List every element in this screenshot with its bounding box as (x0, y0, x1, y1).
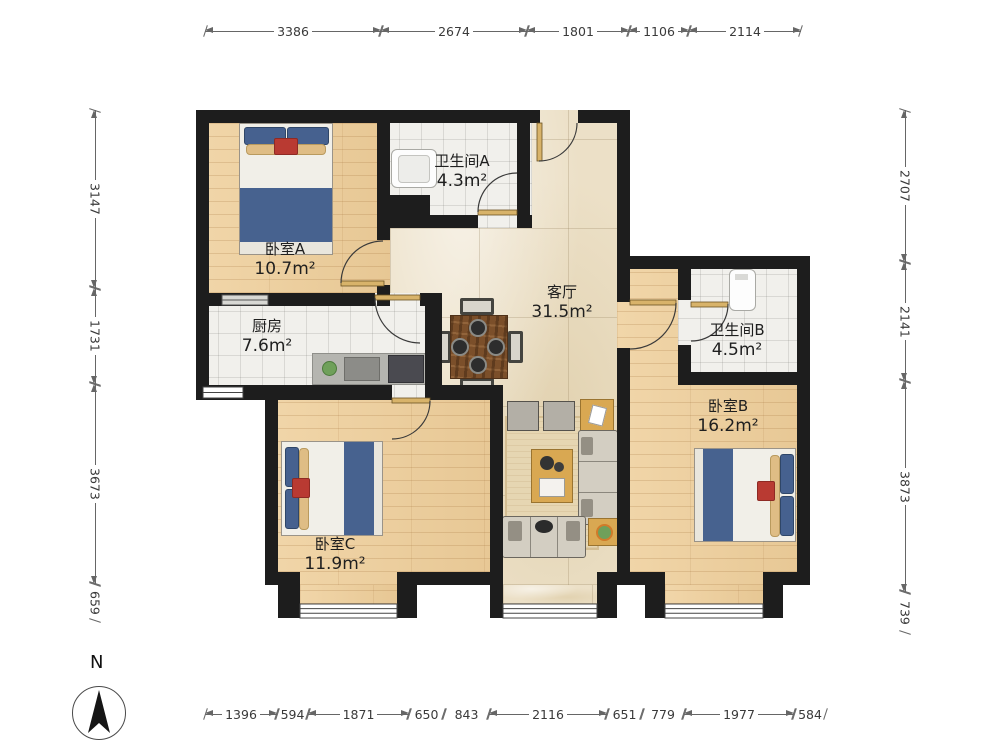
dimension-line (205, 31, 274, 32)
dimension-segment-top: 3386 (205, 23, 381, 39)
dimension-label: 659 (88, 588, 103, 618)
dimension-line (527, 31, 559, 32)
dimension-line (95, 384, 96, 465)
room-area: 10.7m² (254, 259, 315, 280)
room-area: 11.9m² (304, 554, 365, 575)
dimension-label: 2114 (726, 24, 764, 39)
dimension-label: 2141 (898, 303, 913, 341)
door-panel-bedroom-c (392, 398, 430, 403)
dimension-line (758, 714, 794, 715)
room-area: 4.3m² (434, 171, 489, 192)
door-arc-bedroom-c (392, 401, 430, 439)
dimension-segment-bottom: 843 (444, 706, 489, 722)
dimension-segment-bottom: 779 (642, 706, 684, 722)
door-panel-bedroom-b (630, 300, 676, 305)
dimension-label: 2116 (529, 707, 567, 722)
dimension-line (95, 503, 96, 584)
window-bay-bedroom-c (300, 604, 397, 618)
room-name: 卧室B (697, 397, 758, 416)
dimension-segment-bottom: 650 (409, 706, 444, 722)
dimension-segment-right: 2707 (897, 110, 913, 262)
room-label-living-room: 客厅 31.5m² (531, 283, 592, 323)
dimension-label: 1396 (222, 707, 260, 722)
window-bay-living (503, 604, 597, 618)
door-panel-bathroom-a (478, 210, 517, 215)
room-name: 客厅 (531, 283, 592, 302)
door-arc-entry (539, 123, 577, 161)
dimension-line (689, 31, 726, 32)
room-label-bedroom-b: 卧室B 16.2m² (697, 397, 758, 437)
room-label-kitchen: 厨房 7.6m² (242, 317, 292, 357)
dimension-segment-bottom: 651 (607, 706, 642, 722)
room-area: 4.5m² (709, 340, 764, 361)
dimension-label: 1977 (720, 707, 758, 722)
room-label-bedroom-c: 卧室C 11.9m² (304, 535, 365, 575)
window-internal-bedroom-a (222, 295, 268, 305)
dimension-segment-left: 659 (87, 584, 103, 621)
dimension-segment-bottom: 1977 (684, 706, 794, 722)
dimension-segment-top: 1801 (527, 23, 629, 39)
dimension-label: 3147 (88, 180, 103, 218)
door-arc-kitchen (375, 298, 420, 343)
door-panel-kitchen (375, 295, 420, 300)
room-name: 卧室C (304, 535, 365, 554)
room-name: 卫生间A (434, 152, 489, 171)
room-label-bathroom-a: 卫生间A 4.3m² (434, 152, 489, 192)
north-arrow-icon (73, 687, 125, 739)
dimension-label: 1731 (88, 317, 103, 355)
dimension-line (597, 31, 629, 32)
dimension-label: 739 (898, 598, 913, 628)
dimension-label: 650 (412, 707, 442, 722)
dimension-line (567, 714, 607, 715)
dimension-line (905, 340, 906, 381)
doors-windows-layer (0, 0, 1000, 750)
dimension-line (473, 31, 527, 32)
door-panel-bedroom-a (341, 281, 384, 286)
room-name: 厨房 (242, 317, 292, 336)
dimension-segment-bottom: 594 (277, 706, 308, 722)
window-bay-bedroom-b (665, 604, 763, 618)
dimension-segment-top: 2114 (689, 23, 801, 39)
dimension-label: 843 (452, 707, 482, 722)
dimension-segment-top: 2674 (381, 23, 527, 39)
room-label-bathroom-b: 卫生间B 4.5m² (709, 321, 764, 361)
dimension-line (489, 714, 529, 715)
dimension-line (629, 31, 640, 32)
door-panel-bathroom-b (691, 302, 728, 307)
dimension-line (905, 205, 906, 262)
room-area: 16.2m² (697, 416, 758, 437)
dimension-segment-bottom: 1871 (308, 706, 409, 722)
dimension-line (381, 31, 435, 32)
dimension-line (95, 288, 96, 317)
door-panel-entry (537, 123, 542, 161)
dimension-segment-left: 3673 (87, 384, 103, 584)
dimension-line (764, 31, 801, 32)
dimension-line (95, 355, 96, 384)
dimension-line (312, 31, 381, 32)
compass (72, 686, 126, 740)
room-area: 31.5m² (531, 302, 592, 323)
dimension-line (905, 381, 906, 468)
room-label-bedroom-a: 卧室A 10.7m² (254, 240, 315, 280)
dimension-segment-right: 3873 (897, 381, 913, 592)
room-name: 卫生间B (709, 321, 764, 340)
dimension-label: 651 (610, 707, 640, 722)
door-arc-bedroom-b (630, 303, 676, 349)
dimension-line (377, 714, 409, 715)
door-arc-bedroom-a (341, 241, 383, 283)
dimension-label: 2674 (435, 24, 473, 39)
dimension-line (905, 262, 906, 303)
dimension-label: 584 (795, 707, 825, 722)
dimension-segment-bottom: 584 (794, 706, 826, 722)
dimension-line (308, 714, 340, 715)
dimension-label: 594 (278, 707, 308, 722)
dimension-line (905, 110, 906, 167)
dimension-segment-right: 2141 (897, 262, 913, 381)
window-kitchen (203, 387, 243, 398)
room-name: 卧室A (254, 240, 315, 259)
dimension-label: 1871 (340, 707, 378, 722)
dimension-segment-bottom: 1396 (205, 706, 277, 722)
dimension-segment-bottom: 2116 (489, 706, 607, 722)
dimension-line (205, 714, 222, 715)
dimension-label: 2707 (898, 167, 913, 205)
dimension-segment-top: 1106 (629, 23, 689, 39)
dimension-line (684, 714, 720, 715)
dimension-line (95, 218, 96, 288)
dimension-label: 1801 (559, 24, 597, 39)
dimension-line (260, 714, 277, 715)
dimension-label: 3873 (898, 468, 913, 506)
dimension-line (905, 505, 906, 592)
dimension-segment-left: 1731 (87, 288, 103, 384)
floor-plan-canvas: 卧室A 10.7m² 卫生间A 4.3m² 客厅 31.5m² 厨房 7.6m²… (0, 0, 1000, 750)
dimension-line (95, 110, 96, 180)
dimension-segment-left: 3147 (87, 110, 103, 288)
room-area: 7.6m² (242, 336, 292, 357)
dimension-label: 1106 (640, 24, 678, 39)
dimension-label: 779 (648, 707, 678, 722)
dimension-segment-right: 739 (897, 592, 913, 633)
dimension-label: 3386 (274, 24, 312, 39)
dimension-label: 3673 (88, 465, 103, 503)
compass-north-label: N (90, 652, 103, 673)
